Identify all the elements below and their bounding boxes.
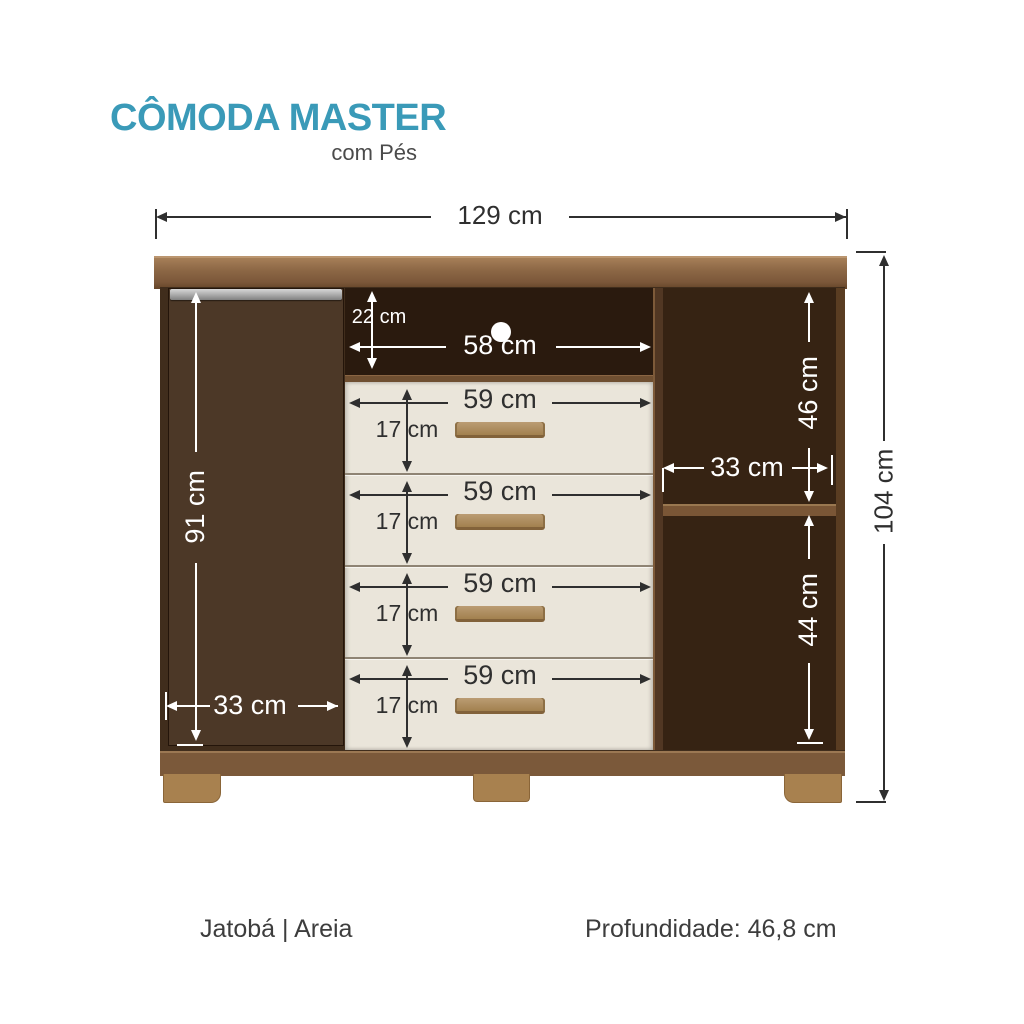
dim-label: 22 cm: [345, 306, 413, 328]
arrow-right-icon: [327, 701, 338, 711]
page-title: CÔMODA MASTER: [110, 97, 446, 140]
arrow-down-icon: [804, 729, 814, 740]
arrow-left-icon: [349, 582, 360, 592]
drawer-handle: [455, 422, 545, 438]
arrow-up-icon: [402, 665, 412, 676]
arrow-left-icon: [349, 398, 360, 408]
arrow-up-icon: [402, 573, 412, 584]
page-subtitle: com Pés: [110, 140, 417, 166]
finish-colors-label: Jatobá | Areia: [200, 915, 352, 944]
dim-line: [354, 346, 446, 348]
dim-line: [808, 448, 810, 496]
arrow-up-icon: [367, 291, 377, 302]
drawer-handle: [455, 606, 545, 622]
arrow-left-icon: [349, 674, 360, 684]
arrow-left-icon: [156, 212, 167, 222]
drawer-width-label: 59 cm: [430, 661, 570, 691]
dim-tick: [846, 209, 848, 239]
dim-label: 91 cm: [181, 442, 211, 572]
arrow-left-icon: [349, 490, 360, 500]
drawer-separator: [345, 473, 653, 475]
dim-label: 58 cm: [437, 331, 563, 361]
dim-line: [195, 300, 197, 452]
arrow-left-icon: [663, 463, 674, 473]
dim-tick: [831, 455, 833, 485]
dim-line: [808, 663, 810, 733]
drawer-height-label: 17 cm: [357, 601, 457, 626]
arrow-right-icon: [640, 674, 651, 684]
dim-tick: [856, 251, 886, 253]
drawer-height-label: 17 cm: [357, 693, 457, 718]
arrow-up-icon: [879, 255, 889, 266]
drawer-separator: [345, 565, 653, 567]
dresser-top-panel: [154, 256, 847, 289]
arrow-up-icon: [402, 389, 412, 400]
base-panel: [160, 751, 845, 776]
arrow-up-icon: [402, 481, 412, 492]
dim-line: [808, 521, 810, 559]
arrow-down-icon: [367, 358, 377, 369]
arrow-right-icon: [835, 212, 846, 222]
drawer-separator: [345, 657, 653, 659]
arrow-up-icon: [804, 515, 814, 526]
dim-label: 104 cm: [870, 426, 899, 556]
arrow-left-icon: [349, 342, 360, 352]
arrow-up-icon: [191, 292, 201, 303]
arrow-right-icon: [640, 398, 651, 408]
depth-label: Profundidade: 46,8 cm: [585, 915, 837, 944]
arrow-up-icon: [804, 292, 814, 303]
dim-tick: [177, 744, 203, 746]
dim-label: 129 cm: [428, 201, 572, 230]
dim-tick: [797, 742, 823, 744]
arrow-down-icon: [879, 790, 889, 801]
dim-label: 46 cm: [794, 338, 824, 448]
arrow-right-icon: [640, 490, 651, 500]
product-dimension-diagram: CÔMODA MASTER com Pés 129 c: [0, 0, 1024, 1024]
drawer-handle: [455, 514, 545, 530]
arrow-right-icon: [817, 463, 828, 473]
right-side-panel: [836, 288, 845, 750]
arrow-left-icon: [166, 701, 177, 711]
arrow-down-icon: [402, 737, 412, 748]
drawer-width-label: 59 cm: [430, 385, 570, 415]
dim-line: [195, 563, 197, 737]
dim-line: [569, 216, 846, 218]
dim-tick: [856, 801, 886, 803]
drawer-width-label: 59 cm: [430, 569, 570, 599]
drawer-height-label: 17 cm: [357, 417, 457, 442]
center-foot: [473, 774, 530, 802]
dim-line: [883, 263, 885, 441]
drawer-width-label: 59 cm: [430, 477, 570, 507]
arrow-right-icon: [640, 582, 651, 592]
right-foot: [784, 774, 842, 803]
left-foot: [163, 774, 221, 803]
arrow-down-icon: [804, 491, 814, 502]
arrow-down-icon: [402, 645, 412, 656]
dim-label: 44 cm: [794, 555, 824, 665]
dim-line: [883, 544, 885, 792]
dim-label: 33 cm: [695, 453, 799, 483]
dim-line: [556, 346, 648, 348]
arrow-down-icon: [402, 461, 412, 472]
arrow-down-icon: [191, 730, 201, 741]
dim-label: 33 cm: [200, 691, 300, 721]
arrow-right-icon: [640, 342, 651, 352]
drawer-height-label: 17 cm: [357, 509, 457, 534]
arrow-down-icon: [402, 553, 412, 564]
dim-line: [167, 216, 431, 218]
drawer-handle: [455, 698, 545, 714]
